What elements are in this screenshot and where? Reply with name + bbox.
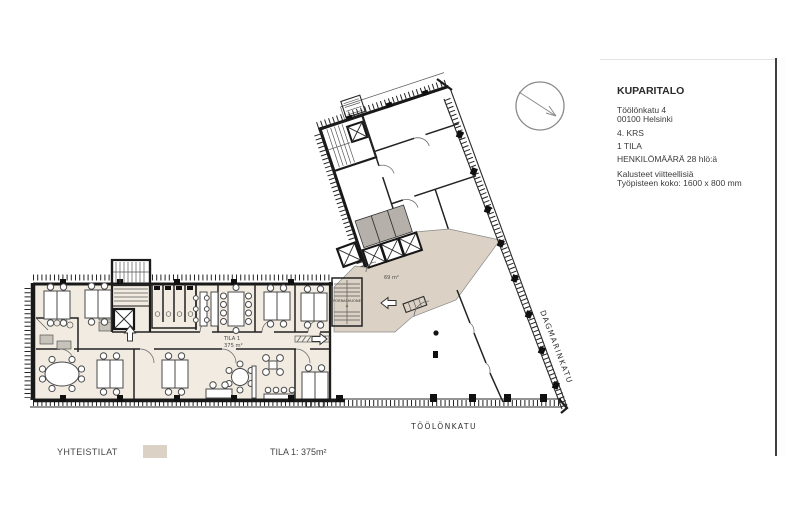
bar-table <box>204 292 218 326</box>
legend-tila1-label: TILA 1: 375m² <box>270 447 327 457</box>
label-tila1: TILA 1 <box>223 336 240 342</box>
floor-label: 4. KRS <box>617 129 644 138</box>
main-wing: TILA 1 375 m² <box>28 260 334 407</box>
legend-common-label: YHTEISTILAT <box>57 447 118 457</box>
scrollbar-track[interactable] <box>777 58 786 456</box>
project-address: Töölönkatu 4 00100 Helsinki <box>617 106 673 124</box>
column <box>433 351 438 358</box>
space-label: 1 TILA <box>617 142 642 151</box>
address-line2: 00100 Helsinki <box>617 114 673 124</box>
page: TILA 1 375 m² PORRASHUONE A 69 m² <box>0 0 786 524</box>
column <box>433 330 438 335</box>
label-stairwell: PORRASHUONE <box>333 299 361 303</box>
label-lobby-area: 69 m² <box>384 275 399 281</box>
occupancy-label: HENKILÖMÄÄRÄ 28 hlö:ä <box>617 155 717 164</box>
elevator-icon <box>114 309 134 329</box>
furniture-note: Kalusteet viitteellisiä Työpisteen koko:… <box>617 170 742 188</box>
note-line2: Työpisteen koko: 1600 x 800 mm <box>617 178 742 188</box>
label-tila1-area: 375 m² <box>224 343 243 349</box>
legend: YHTEISTILAT TILA 1: 375m² <box>0 443 600 463</box>
legend-common-swatch <box>143 445 167 458</box>
page-edge-line <box>600 59 776 60</box>
street-label-dagmarinkatu: DAGMARINKATU <box>538 309 574 385</box>
street-label-toolonkatu: TÖÖLÖNKATU <box>410 422 477 431</box>
north-arrow-icon <box>516 82 564 130</box>
open-area <box>433 290 503 402</box>
project-title: KUPARITALO <box>617 87 684 96</box>
